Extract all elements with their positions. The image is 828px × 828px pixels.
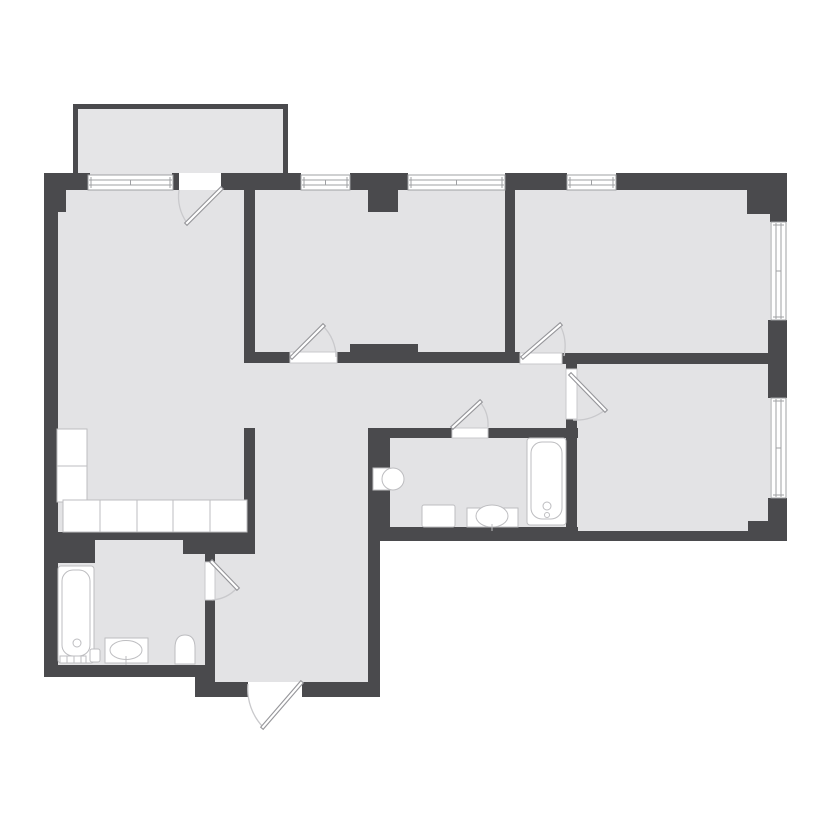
window-middle-right xyxy=(408,175,505,190)
kitchen-counter-part-5 xyxy=(173,500,210,532)
bathtub-2-part-0 xyxy=(527,438,566,525)
toilet-1-part-0 xyxy=(175,635,195,664)
wall-right-1 xyxy=(770,214,787,222)
wall-bottom-bedroom xyxy=(568,531,748,541)
window-bedroom-side xyxy=(771,398,786,498)
wall-top-2 xyxy=(350,173,408,190)
balcony xyxy=(73,104,288,175)
wall-corridor-2 xyxy=(337,352,520,363)
wall-bath1-duct xyxy=(58,538,95,563)
wall-bottom-bath2 xyxy=(368,527,578,541)
floor-plan-canvas xyxy=(0,0,828,828)
wall-middle-right xyxy=(505,190,515,355)
bedroom-floor xyxy=(577,364,770,531)
kitchen-counter-part-3 xyxy=(100,500,137,532)
balcony-wall-left xyxy=(73,104,78,173)
wall-bath1-right xyxy=(205,600,215,667)
toilet-2-part-1 xyxy=(382,468,404,490)
wall-bedroom-left-top xyxy=(566,364,577,369)
wall-left xyxy=(44,212,58,677)
hallway-lower-floor xyxy=(215,554,368,682)
wall-right-3 xyxy=(768,498,787,541)
bathtub-1-part-0 xyxy=(58,566,94,663)
toilet-1 xyxy=(175,635,195,664)
corridor-floor xyxy=(245,362,567,428)
window-living xyxy=(88,175,173,190)
balcony-floor xyxy=(78,109,283,175)
kitchen-counter-part-1 xyxy=(57,466,87,502)
kitchen-counter-part-4 xyxy=(137,500,173,532)
wall-hall-top-block xyxy=(183,532,255,554)
wall-top-1 xyxy=(221,173,301,190)
wall-corridor-1 xyxy=(244,352,290,363)
window-right-room-top xyxy=(567,175,616,190)
bathtub-1-part-4 xyxy=(60,656,86,663)
balcony-door-opening xyxy=(179,173,221,190)
kitchen-counter-part-2 xyxy=(63,500,100,532)
sink-2 xyxy=(467,505,518,531)
floor-plan-page xyxy=(0,0,828,828)
middle-bedroom-floor xyxy=(255,188,505,353)
balcony-wall-right xyxy=(283,104,288,173)
wall-hall-bottom-left xyxy=(195,682,248,697)
column-top-middle xyxy=(368,190,398,212)
wall-corridor-thick xyxy=(350,344,418,352)
washing-machine-part-0 xyxy=(422,505,455,527)
bathtub-2 xyxy=(527,438,566,525)
wall-corner-tr xyxy=(747,188,787,214)
kitchen-counter-part-6 xyxy=(210,500,247,532)
washing-machine xyxy=(422,505,455,527)
sill-bathroom2-door xyxy=(452,428,488,438)
wall-corner-br xyxy=(748,521,770,541)
bathtub-1 xyxy=(58,566,100,663)
bathtub-1-part-3 xyxy=(90,649,100,662)
wall-top-4 xyxy=(616,173,787,190)
sill-bathroom1-door xyxy=(205,562,215,600)
wall-corridor-3 xyxy=(562,353,768,364)
wall-hall-right xyxy=(368,538,380,697)
wall-left-middle xyxy=(244,173,255,362)
sink-1 xyxy=(105,638,148,665)
balcony-wall-top xyxy=(73,104,288,109)
hallway-upper-floor xyxy=(254,428,368,554)
wall-bath2-top-1 xyxy=(368,428,452,438)
wall-top-3 xyxy=(505,173,567,190)
toilet-2 xyxy=(373,468,404,490)
window-middle-left xyxy=(301,175,350,190)
window-right-room-side xyxy=(771,222,786,320)
wall-bath2-top-2 xyxy=(488,428,578,438)
wall-right-2 xyxy=(768,320,787,398)
wall-left-upper xyxy=(44,173,66,212)
kitchen-counter-part-0 xyxy=(57,429,87,466)
wall-bath1-bottom xyxy=(44,665,215,677)
sink-2-part-1 xyxy=(476,505,508,527)
